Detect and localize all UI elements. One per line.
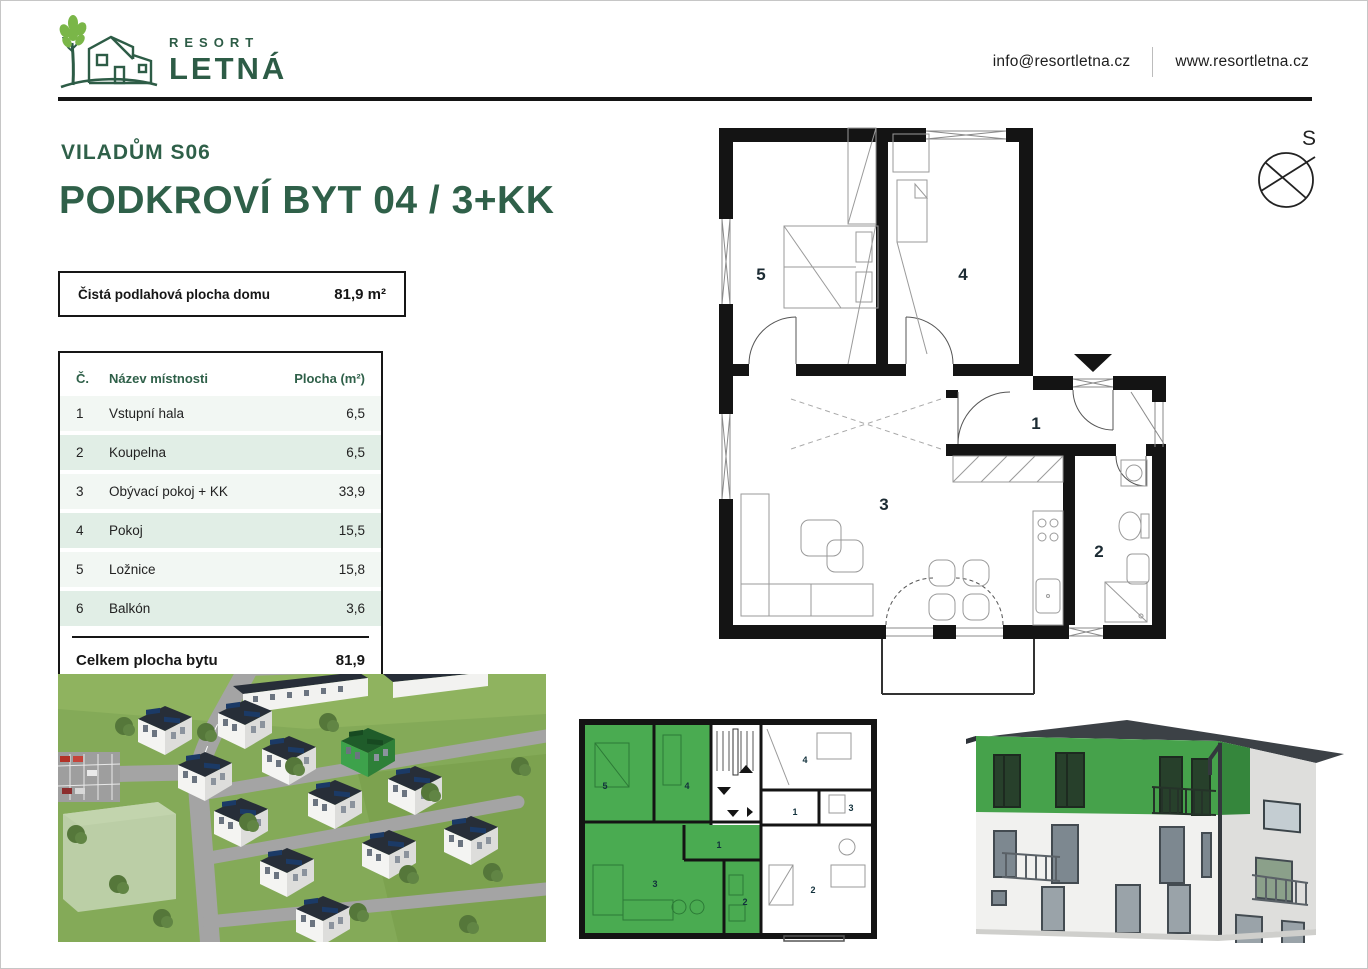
mini-right-label-3: 3 (848, 803, 853, 813)
col-name: Název místnosti (99, 363, 265, 392)
car (60, 756, 70, 762)
parking-lot (58, 752, 120, 802)
room-name: Ložnice (99, 552, 265, 587)
mini-right-label-1: 1 (792, 807, 797, 817)
room-area: 6,5 (265, 396, 381, 431)
plan-walls (719, 128, 1166, 639)
website-link[interactable]: www.resortletna.cz (1175, 53, 1309, 71)
room-table: Č. Název místnosti Plocha (m²) 1 Vstupní… (58, 351, 383, 687)
room-name: Vstupní hala (99, 396, 265, 431)
room-area: 33,9 (265, 474, 381, 509)
table-row: 4 Pokoj 15,5 (60, 513, 381, 548)
room-label-4: 4 (958, 265, 968, 284)
logo-icon (59, 15, 159, 93)
mini-label-1: 1 (716, 840, 721, 850)
room-name: Obývací pokoj + KK (99, 474, 265, 509)
room-label-3: 3 (879, 495, 888, 514)
building-subtitle: VILADŮM S06 (61, 141, 211, 165)
dining-set (929, 560, 989, 620)
aerial-site-view (58, 674, 546, 942)
side-green-band (1218, 741, 1250, 815)
mini-label-5: 5 (602, 781, 607, 791)
room-number: 1 (60, 396, 99, 431)
room-number: 4 (60, 513, 99, 548)
bathroom-fixtures (1105, 460, 1149, 622)
net-floor-area-label: Čistá podlahová plocha domu (78, 287, 270, 302)
col-area: Plocha (m²) (265, 363, 381, 392)
room-area: 15,8 (265, 552, 381, 587)
table-row: 1 Vstupní hala 6,5 (60, 396, 381, 431)
room4-furniture (893, 134, 929, 354)
car (62, 788, 72, 794)
col-number: Č. (60, 363, 99, 392)
mini-floor-plan: 5 4 1 3 2 4 1 3 2 (579, 715, 877, 943)
brand-name-bottom: LETNÁ (169, 53, 287, 84)
balcony-outline (882, 639, 1034, 694)
room-name: Pokoj (99, 513, 265, 548)
table-row: 5 Ložnice 15,8 (60, 552, 381, 587)
table-row: 2 Koupelna 6,5 (60, 435, 381, 470)
compass-icon: S (1253, 123, 1325, 215)
room-number: 5 (60, 552, 99, 587)
kitchen-counter (1033, 511, 1063, 625)
main-floor-plan: 5 4 3 1 2 (701, 114, 1181, 706)
room-number: 2 (60, 435, 99, 470)
car (87, 770, 97, 776)
header-contacts: info@resortletna.cz www.resortletna.cz (993, 47, 1309, 77)
mini-label-2: 2 (742, 897, 747, 907)
table-row: 6 Balkón 3,6 (60, 591, 381, 626)
car (73, 756, 83, 762)
car (75, 788, 85, 794)
total-value: 81,9 (336, 652, 365, 669)
room-name: Balkón (99, 591, 265, 626)
building-render (964, 715, 1346, 943)
net-floor-area-box: Čistá podlahová plocha domu 81,9 m² (58, 271, 406, 317)
table-row: 3 Obývací pokoj + KK 33,9 (60, 474, 381, 509)
logo: RESORT LETNÁ (59, 15, 287, 93)
room-number: 3 (60, 474, 99, 509)
page-title: PODKROVÍ BYT 04 / 3+KK (59, 179, 554, 223)
room-label-2: 2 (1094, 542, 1103, 561)
entrance-arrow-icon (1074, 354, 1112, 372)
contact-divider (1152, 47, 1153, 77)
bed (784, 226, 878, 308)
wardrobe (848, 128, 876, 364)
total-label: Celkem plocha bytu (76, 652, 218, 669)
brochure-page: RESORT LETNÁ info@resortletna.cz www.res… (0, 0, 1368, 969)
coffee-table (801, 520, 863, 572)
mini-right-label-4: 4 (802, 755, 807, 765)
house-icon (89, 37, 151, 83)
mini-label-4: 4 (684, 781, 689, 791)
mini-label-3: 3 (652, 879, 657, 889)
mini-right-label-2: 2 (810, 885, 815, 895)
side-top-window (1264, 801, 1300, 833)
tree-icon (59, 15, 88, 85)
room-label-5: 5 (756, 265, 765, 284)
room-name: Koupelna (99, 435, 265, 470)
brand-name-top: RESORT (169, 36, 287, 49)
room-label-1: 1 (1031, 414, 1040, 433)
net-floor-area-value: 81,9 m² (334, 286, 386, 303)
planned-building (63, 802, 176, 912)
room-area: 15,5 (265, 513, 381, 548)
header-rule (58, 97, 1312, 101)
table-header-row: Č. Název místnosti Plocha (m²) (60, 363, 381, 392)
room-area: 3,6 (265, 591, 381, 626)
ceiling-slope-lines (791, 399, 941, 449)
email-link[interactable]: info@resortletna.cz (993, 53, 1131, 71)
sofa (741, 494, 873, 616)
room-area: 6,5 (265, 435, 381, 470)
compass-north-label: S (1302, 127, 1316, 150)
room-number: 6 (60, 591, 99, 626)
hall-closet (953, 456, 1063, 482)
